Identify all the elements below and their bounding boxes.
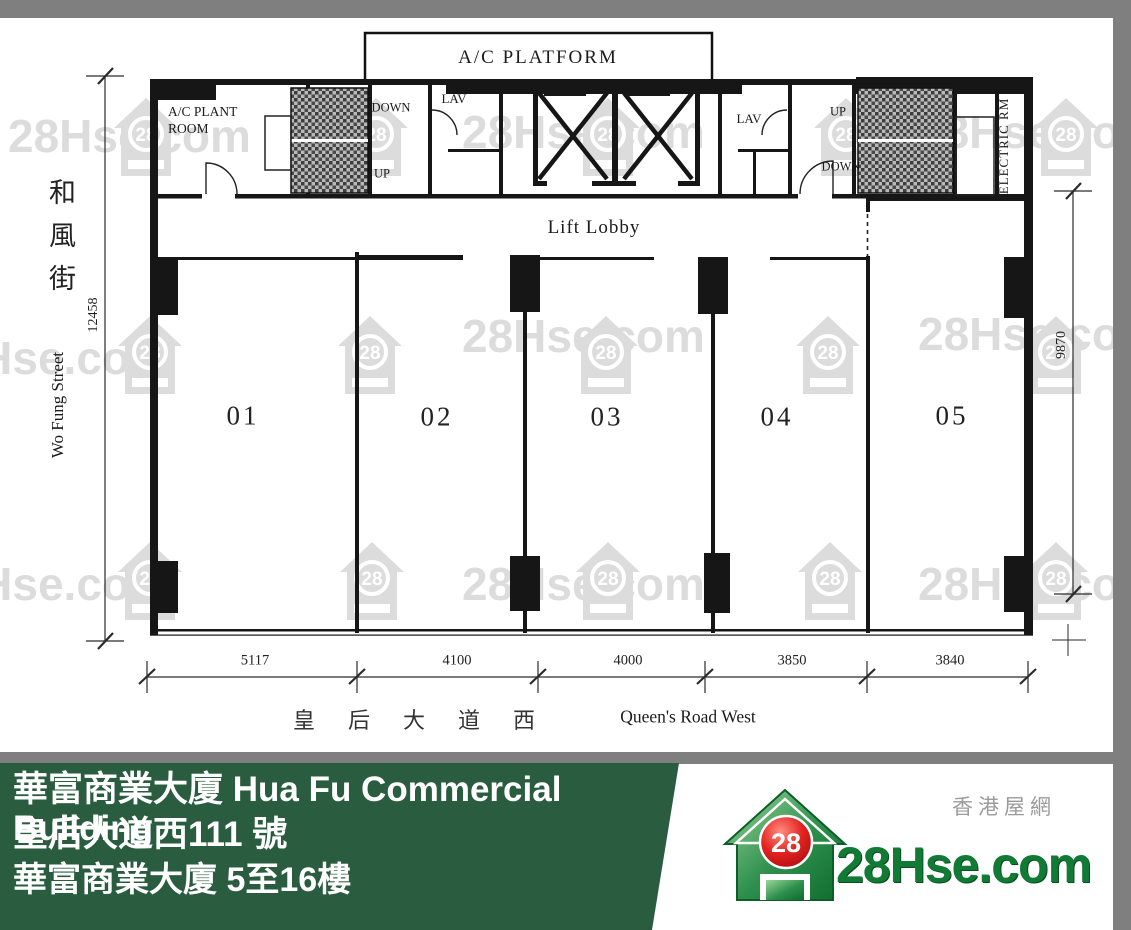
svg-text:28: 28 xyxy=(361,569,382,590)
logo-house-icon: 28 xyxy=(725,790,845,900)
svg-text:28: 28 xyxy=(597,569,618,590)
up-label-right: UP xyxy=(830,105,846,120)
svg-text:28: 28 xyxy=(359,343,380,364)
up-label-left: UP xyxy=(374,167,390,182)
dimension-bottom-5: 3840 xyxy=(936,653,965,670)
svg-text:28: 28 xyxy=(817,343,838,364)
unit-number-03: 03 xyxy=(591,402,624,433)
right-gray-border xyxy=(1113,0,1131,930)
divider-gray-bar xyxy=(0,752,1131,764)
down-label-left: DOWN xyxy=(372,101,411,116)
dimension-bottom-2: 4100 xyxy=(443,653,472,670)
street-left-english: Wo Fung Street xyxy=(48,352,68,458)
svg-text:28: 28 xyxy=(1045,569,1066,590)
building-info-banner: 華富商業大廈 Hua Fu Commercial Building 皇后大道西1… xyxy=(0,763,679,930)
dimension-bottom-1: 5117 xyxy=(241,653,269,670)
ac-plant-line1: A/C PLANT xyxy=(168,103,237,120)
logo-badge: 28 xyxy=(771,828,801,858)
unit-number-02: 02 xyxy=(421,402,454,433)
ac-platform-label: A/C PLATFORM xyxy=(458,47,618,69)
svg-text:28: 28 xyxy=(819,569,840,590)
svg-text:28: 28 xyxy=(1055,125,1076,146)
lav-label-left: LAV xyxy=(441,91,466,107)
street-bottom-english: Queen's Road West xyxy=(620,707,756,728)
street-left-chinese: 和風街 xyxy=(41,178,80,307)
electric-rm-label: ELECTRIC RM xyxy=(996,98,1012,195)
site-name-chinese: 香港屋網 xyxy=(952,791,1056,821)
svg-text:28: 28 xyxy=(595,343,616,364)
dimension-bottom-4: 3850 xyxy=(778,653,807,670)
unit-number-01: 01 xyxy=(227,401,260,432)
dimension-right: 9870 xyxy=(1054,331,1070,359)
building-address: 皇后大道西111 號 xyxy=(13,816,287,855)
down-label-right: DOWN xyxy=(822,160,861,175)
ac-plant-room-label: A/C PLANTROOM xyxy=(168,103,237,137)
unit-number-04: 04 xyxy=(761,402,794,433)
lift-lobby-label: Lift Lobby xyxy=(548,217,641,239)
street-bottom-chinese: 皇后大道西 xyxy=(293,703,568,735)
unit-number-05: 05 xyxy=(936,401,969,432)
dimension-bottom-3: 4000 xyxy=(614,653,643,670)
lav-label-right: LAV xyxy=(736,111,761,127)
watermark-layer: 28Hse.com 28Hse.com 28Hse.com 28Hse.com … xyxy=(0,98,1131,620)
floorplan-image: 28Hse.com 28Hse.com 28Hse.com 28Hse.com … xyxy=(0,0,1131,930)
dimension-left: 12458 xyxy=(86,298,102,333)
top-gray-border xyxy=(0,0,1131,18)
ac-plant-line2: ROOM xyxy=(168,120,237,137)
brand-wordmark: 28Hse.com xyxy=(836,836,1091,894)
building-floors: 華富商業大廈 5至16樓 xyxy=(13,862,351,899)
